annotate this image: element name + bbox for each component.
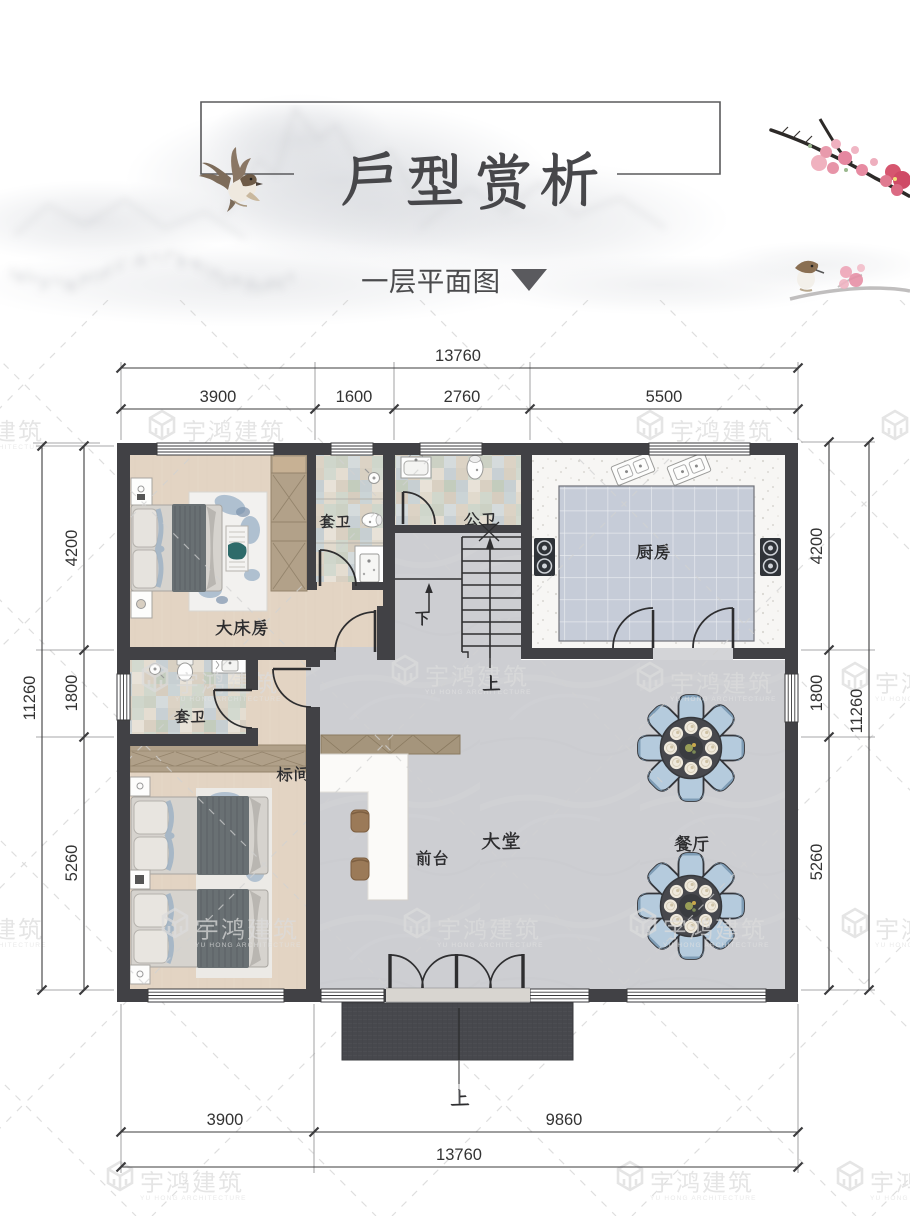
svg-text:3900: 3900 [200, 388, 237, 406]
svg-text:5260: 5260 [808, 844, 826, 881]
svg-text:13760: 13760 [435, 347, 481, 365]
svg-text:5500: 5500 [646, 388, 683, 406]
svg-text:4200: 4200 [63, 530, 81, 567]
svg-text:5260: 5260 [63, 845, 81, 882]
svg-text:3900: 3900 [207, 1111, 244, 1129]
svg-text:1800: 1800 [808, 675, 826, 712]
svg-text:4200: 4200 [808, 528, 826, 565]
svg-text:13760: 13760 [436, 1146, 482, 1164]
svg-text:11260: 11260 [21, 676, 39, 721]
svg-text:2760: 2760 [444, 388, 481, 406]
svg-text:1800: 1800 [63, 675, 81, 712]
svg-text:9860: 9860 [546, 1111, 583, 1129]
svg-text:11260: 11260 [848, 689, 866, 734]
svg-text:1600: 1600 [336, 388, 373, 406]
